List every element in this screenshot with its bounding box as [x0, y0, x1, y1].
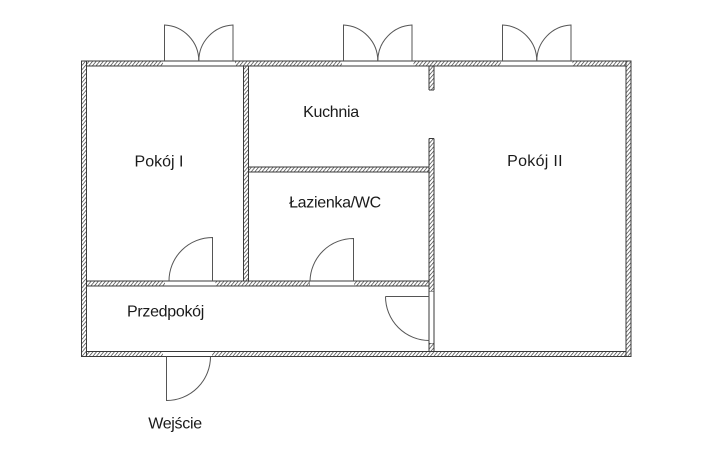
svg-text:Łazienka/WC: Łazienka/WC	[289, 195, 381, 212]
svg-text:Wejście: Wejście	[148, 416, 202, 433]
svg-text:Pokój I: Pokój I	[135, 154, 184, 171]
svg-text:Kuchnia: Kuchnia	[303, 104, 359, 121]
svg-text:Pokój II: Pokój II	[507, 153, 563, 170]
svg-text:Przedpokój: Przedpokój	[127, 304, 204, 321]
